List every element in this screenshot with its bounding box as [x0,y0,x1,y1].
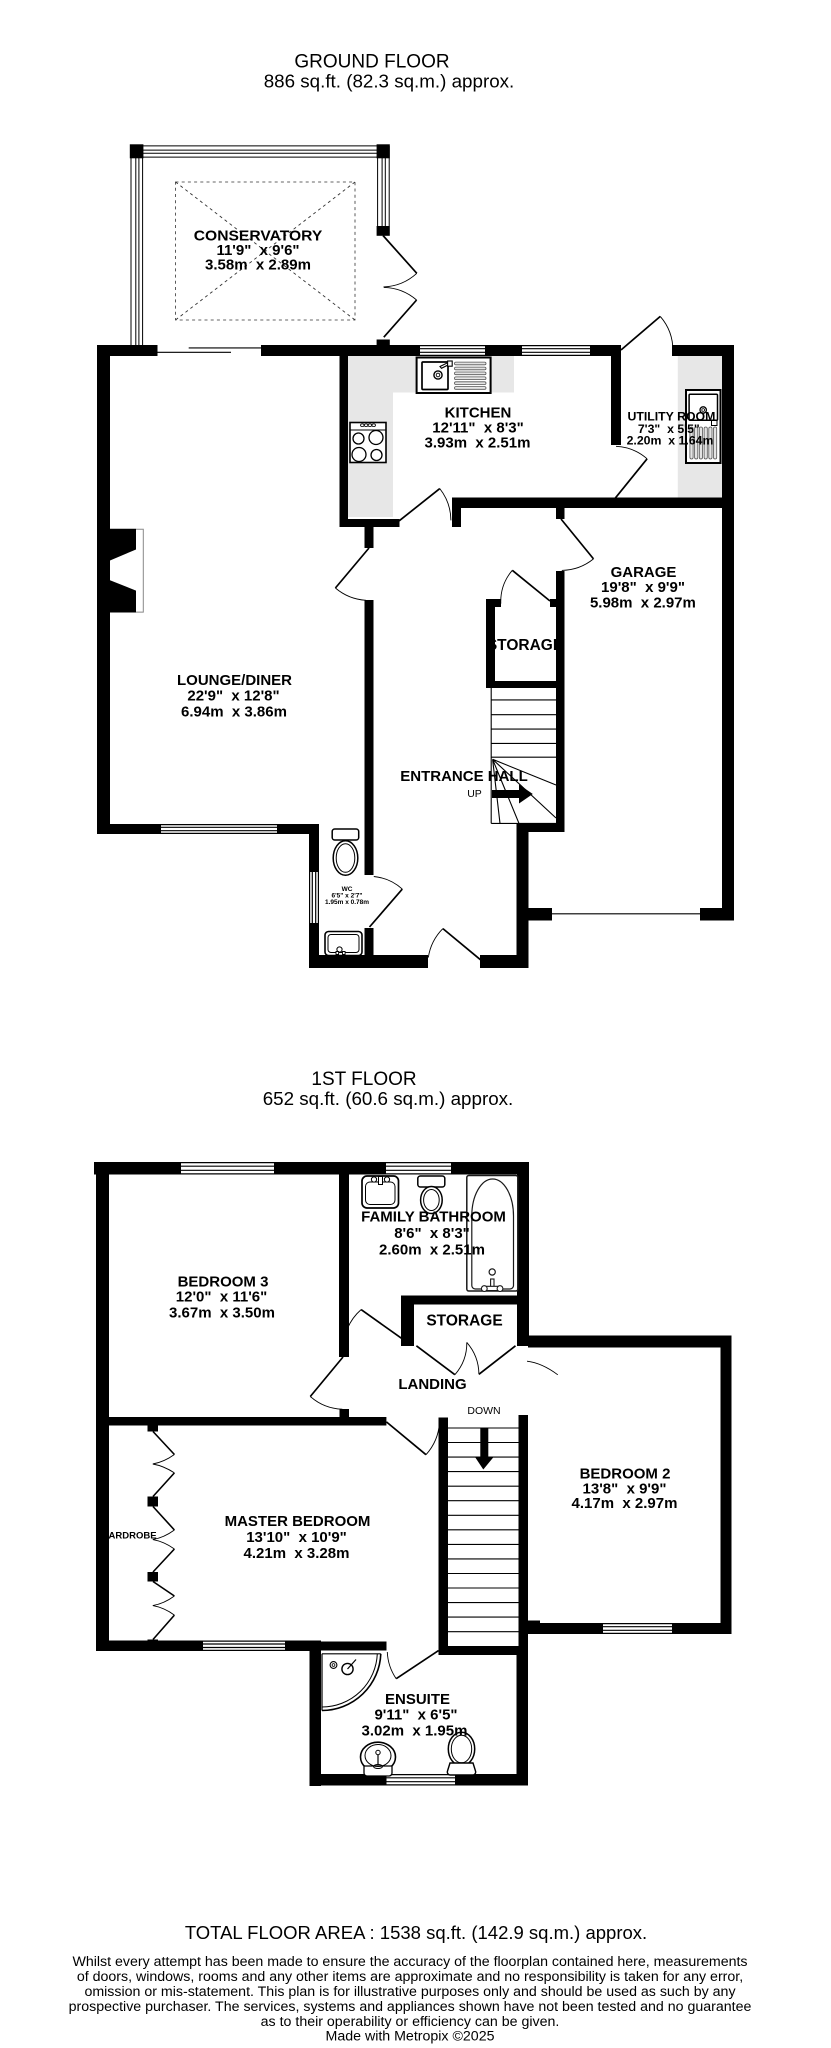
svg-text:Whilst every attempt has been: Whilst every attempt has been made to en… [72,1954,747,1970]
svg-text:3.67m x 3.50m: 3.67m x 3.50m [169,1304,275,1321]
svg-text:DOWN: DOWN [467,1405,500,1417]
svg-text:UP: UP [467,788,482,800]
svg-text:ENSUITE: ENSUITE [385,1691,450,1708]
svg-text:2.60m x 2.51m: 2.60m x 2.51m [379,1242,485,1259]
svg-text:omission or mis-statement. Thi: omission or mis-statement. This plan is … [84,1984,736,2000]
svg-text:prospective purchaser. The ser: prospective purchaser. The services, sys… [69,1999,752,2015]
svg-text:FAMILY BATHROOM: FAMILY BATHROOM [361,1209,506,1226]
svg-text:3.93m x 2.51m: 3.93m x 2.51m [425,435,531,452]
svg-text:886 sq.ft. (82.3 sq.m.) approx: 886 sq.ft. (82.3 sq.m.) approx. [264,70,515,91]
svg-text:STORAGE: STORAGE [426,1313,502,1330]
svg-text:ENTRANCE HALL: ENTRANCE HALL [400,768,528,785]
svg-text:ARDROBE: ARDROBE [109,1531,157,1542]
svg-text:13'10" x 10'9": 13'10" x 10'9" [246,1529,347,1546]
svg-text:of doors, windows, rooms and a: of doors, windows, rooms and any other i… [77,1969,743,1985]
svg-text:LOUNGE/DINER: LOUNGE/DINER [177,672,292,689]
svg-text:4.21m x 3.28m: 4.21m x 3.28m [244,1545,350,1562]
svg-text:12'0" x 11'6": 12'0" x 11'6" [176,1289,267,1306]
svg-text:6.94m x 3.86m: 6.94m x 3.86m [181,704,287,721]
svg-text:MASTER BEDROOM: MASTER BEDROOM [225,1513,371,1530]
svg-text:9'11" x 6'5": 9'11" x 6'5" [374,1707,457,1724]
svg-text:STORAGE: STORAGE [487,637,563,654]
svg-text:3.58m x 2.89m: 3.58m x 2.89m [205,256,311,273]
svg-text:1.95m x 0.78m: 1.95m x 0.78m [325,899,369,906]
svg-text:3.02m x 1.95m: 3.02m x 1.95m [362,1723,468,1740]
svg-text:8'6" x 8'3": 8'6" x 8'3" [394,1225,470,1242]
svg-text:2.20m x 1.64m: 2.20m x 1.64m [627,434,714,448]
svg-text:19'8" x 9'9": 19'8" x 9'9" [601,579,685,596]
svg-text:LANDING: LANDING [398,1376,466,1393]
svg-text:5.98m x 2.97m: 5.98m x 2.97m [590,595,696,612]
svg-text:4.17m x 2.97m: 4.17m x 2.97m [572,1495,678,1512]
svg-text:TOTAL FLOOR AREA : 1538 sq.ft.: TOTAL FLOOR AREA : 1538 sq.ft. (142.9 sq… [185,1922,647,1943]
svg-text:652 sq.ft. (60.6 sq.m.) approx: 652 sq.ft. (60.6 sq.m.) approx. [263,1088,514,1109]
svg-text:1ST FLOOR: 1ST FLOOR [311,1069,416,1090]
svg-text:22'9" x 12'8": 22'9" x 12'8" [187,688,279,705]
svg-text:Made with Metropix ©2025: Made with Metropix ©2025 [326,2029,495,2045]
